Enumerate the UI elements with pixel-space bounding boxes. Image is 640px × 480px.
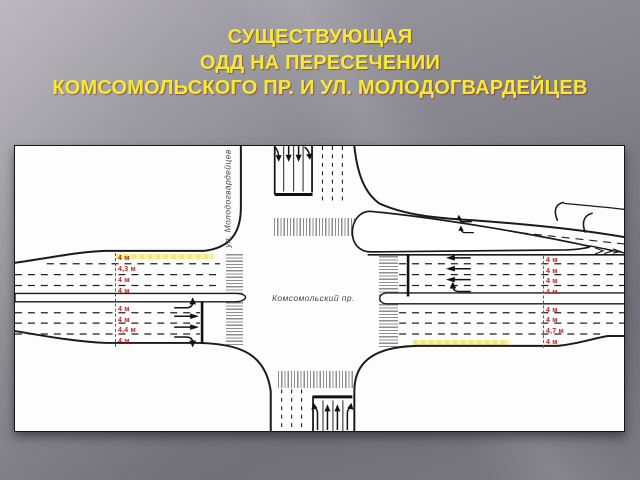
traffic-island bbox=[352, 211, 590, 252]
median-west bbox=[15, 293, 246, 301]
diagram-panel: 4 м 4,3 м 4 м 4 м 4 м 4 м 4,4 м 4 м 4 м … bbox=[14, 145, 625, 432]
dim-label: 4,3 м bbox=[118, 266, 136, 274]
median-east bbox=[380, 293, 624, 304]
dimension-line-west bbox=[115, 253, 116, 347]
dim-label: 4 м bbox=[546, 278, 558, 286]
dim-label: 4,4 м bbox=[118, 327, 136, 335]
dim-label: 4 м bbox=[546, 307, 558, 315]
slide-title: СУЩЕСТВУЮЩАЯ ОДД НА ПЕРЕСЕЧЕНИИ КОМСОМОЛ… bbox=[0, 25, 640, 102]
dim-label: 4 м bbox=[118, 288, 130, 296]
dim-label: 4 м bbox=[546, 317, 558, 325]
slide: { "title": { "line1": "СУЩЕСТВУЮЩАЯ", "l… bbox=[0, 0, 640, 480]
dim-label: 4 м bbox=[546, 268, 558, 276]
lane-arrows bbox=[174, 146, 474, 430]
title-line-2: ОДД НА ПЕРЕСЕЧЕНИИ bbox=[0, 51, 640, 77]
dim-label: 4 м bbox=[546, 289, 558, 297]
dim-label: 4 м bbox=[118, 306, 130, 314]
title-line-1: СУЩЕСТВУЮЩАЯ bbox=[0, 25, 640, 51]
approach-lane-lines bbox=[284, 146, 343, 431]
dimension-line-east bbox=[543, 256, 544, 348]
street-label-vertical: ул. Молодогвардейцев bbox=[223, 149, 234, 249]
dim-label: 4 м bbox=[118, 277, 130, 285]
dim-label: 4 м bbox=[118, 317, 130, 325]
dim-label: 4 м bbox=[546, 339, 558, 347]
road-geometry bbox=[15, 146, 624, 431]
dim-label: 4 м bbox=[546, 257, 558, 265]
curb-lines bbox=[15, 146, 624, 431]
title-line-3: КОМСОМОЛЬСКОГО ПР. И УЛ. МОЛОДОГВАРДЕЙЦЕ… bbox=[0, 76, 640, 102]
dim-label: 4 м bbox=[118, 338, 130, 346]
dim-label: 4 м bbox=[118, 255, 130, 263]
street-label-horizontal: Комсомольский пр. bbox=[272, 293, 355, 303]
dim-label: 4,7 м bbox=[546, 328, 564, 336]
